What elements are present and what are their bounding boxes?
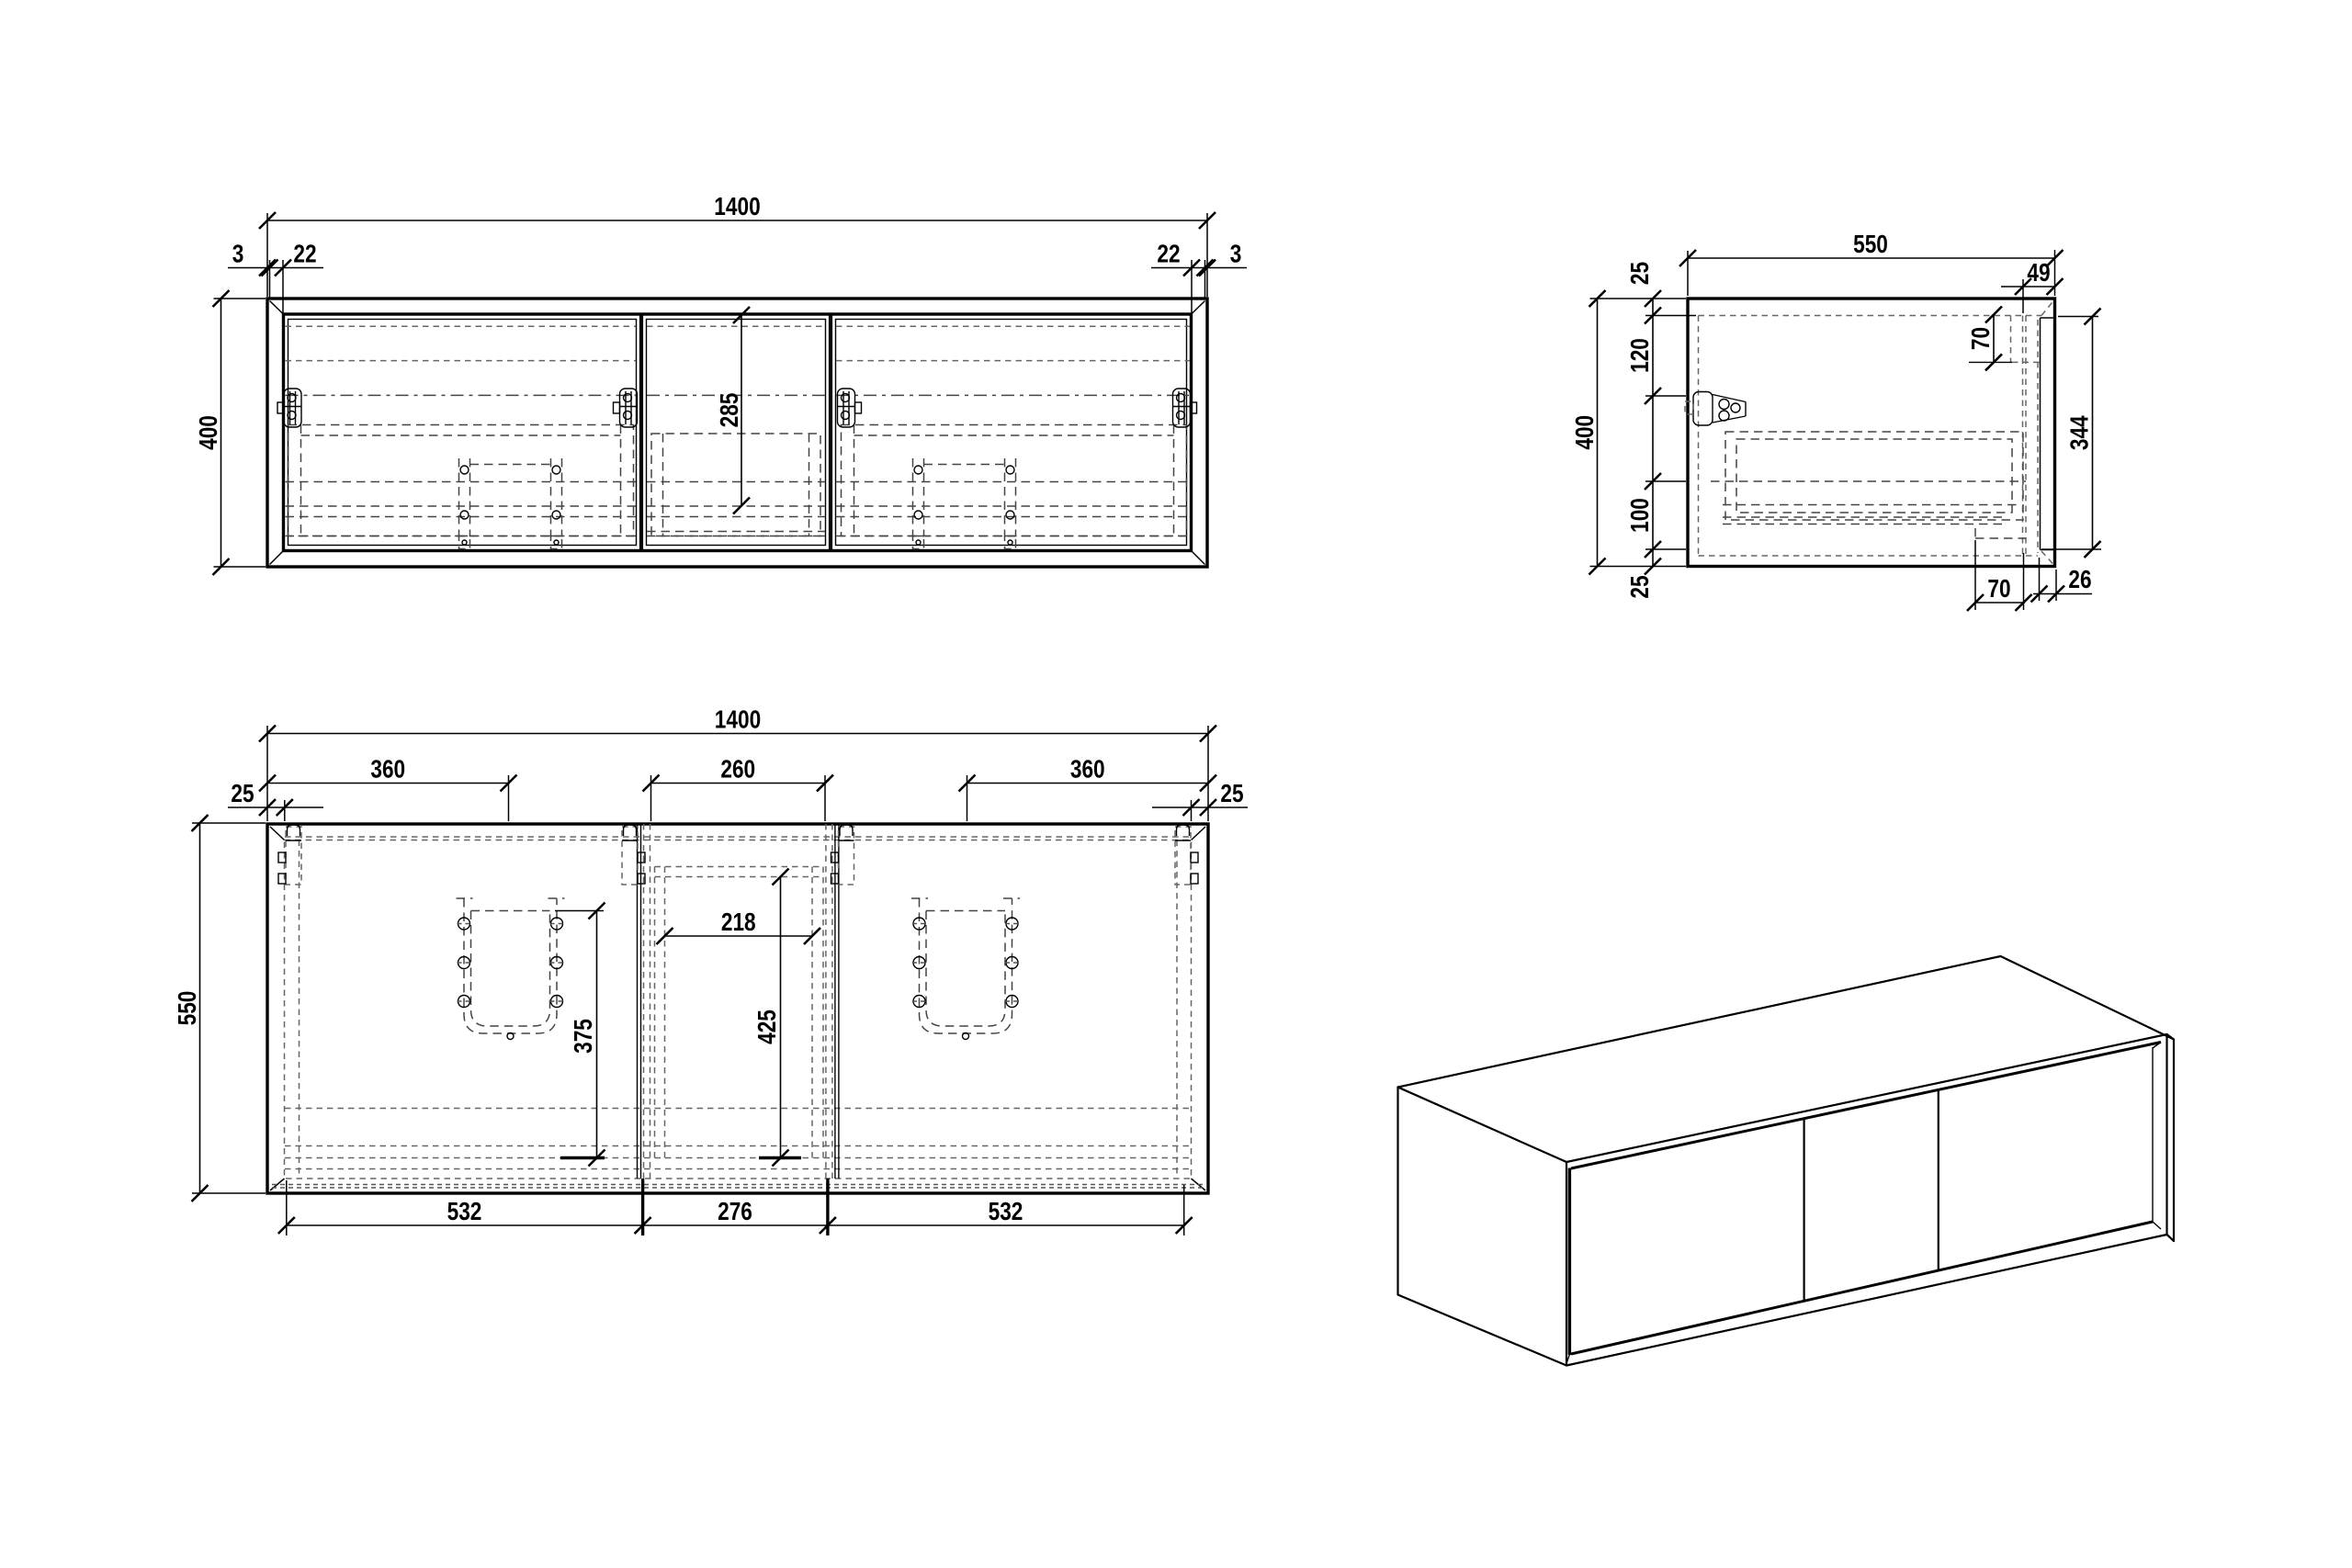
svg-text:218: 218 [721,908,756,936]
svg-text:400: 400 [194,415,222,450]
svg-text:120: 120 [1625,338,1654,373]
svg-text:22: 22 [1157,240,1180,268]
svg-text:70: 70 [1987,574,2010,603]
svg-text:550: 550 [173,991,201,1026]
svg-text:70: 70 [1966,327,1995,350]
svg-text:26: 26 [2068,565,2091,593]
svg-text:425: 425 [752,1010,781,1044]
svg-text:3: 3 [232,240,244,268]
svg-text:532: 532 [989,1197,1023,1225]
svg-text:25: 25 [1220,779,1243,807]
svg-text:3: 3 [1230,240,1242,268]
svg-text:25: 25 [231,779,254,807]
svg-text:49: 49 [2027,258,2050,287]
svg-text:375: 375 [569,1019,597,1054]
svg-text:25: 25 [1625,575,1654,598]
svg-text:360: 360 [370,755,405,784]
svg-text:22: 22 [293,240,316,268]
svg-text:400: 400 [1570,415,1599,450]
svg-text:285: 285 [715,393,743,428]
svg-text:1400: 1400 [714,192,760,220]
svg-text:532: 532 [447,1197,482,1225]
svg-text:25: 25 [1625,262,1654,285]
svg-text:1400: 1400 [715,705,761,734]
svg-text:344: 344 [2065,415,2094,450]
svg-text:276: 276 [718,1197,752,1225]
svg-text:360: 360 [1070,755,1105,784]
svg-text:550: 550 [1853,230,1888,258]
svg-text:260: 260 [720,755,755,784]
svg-text:100: 100 [1625,498,1654,533]
